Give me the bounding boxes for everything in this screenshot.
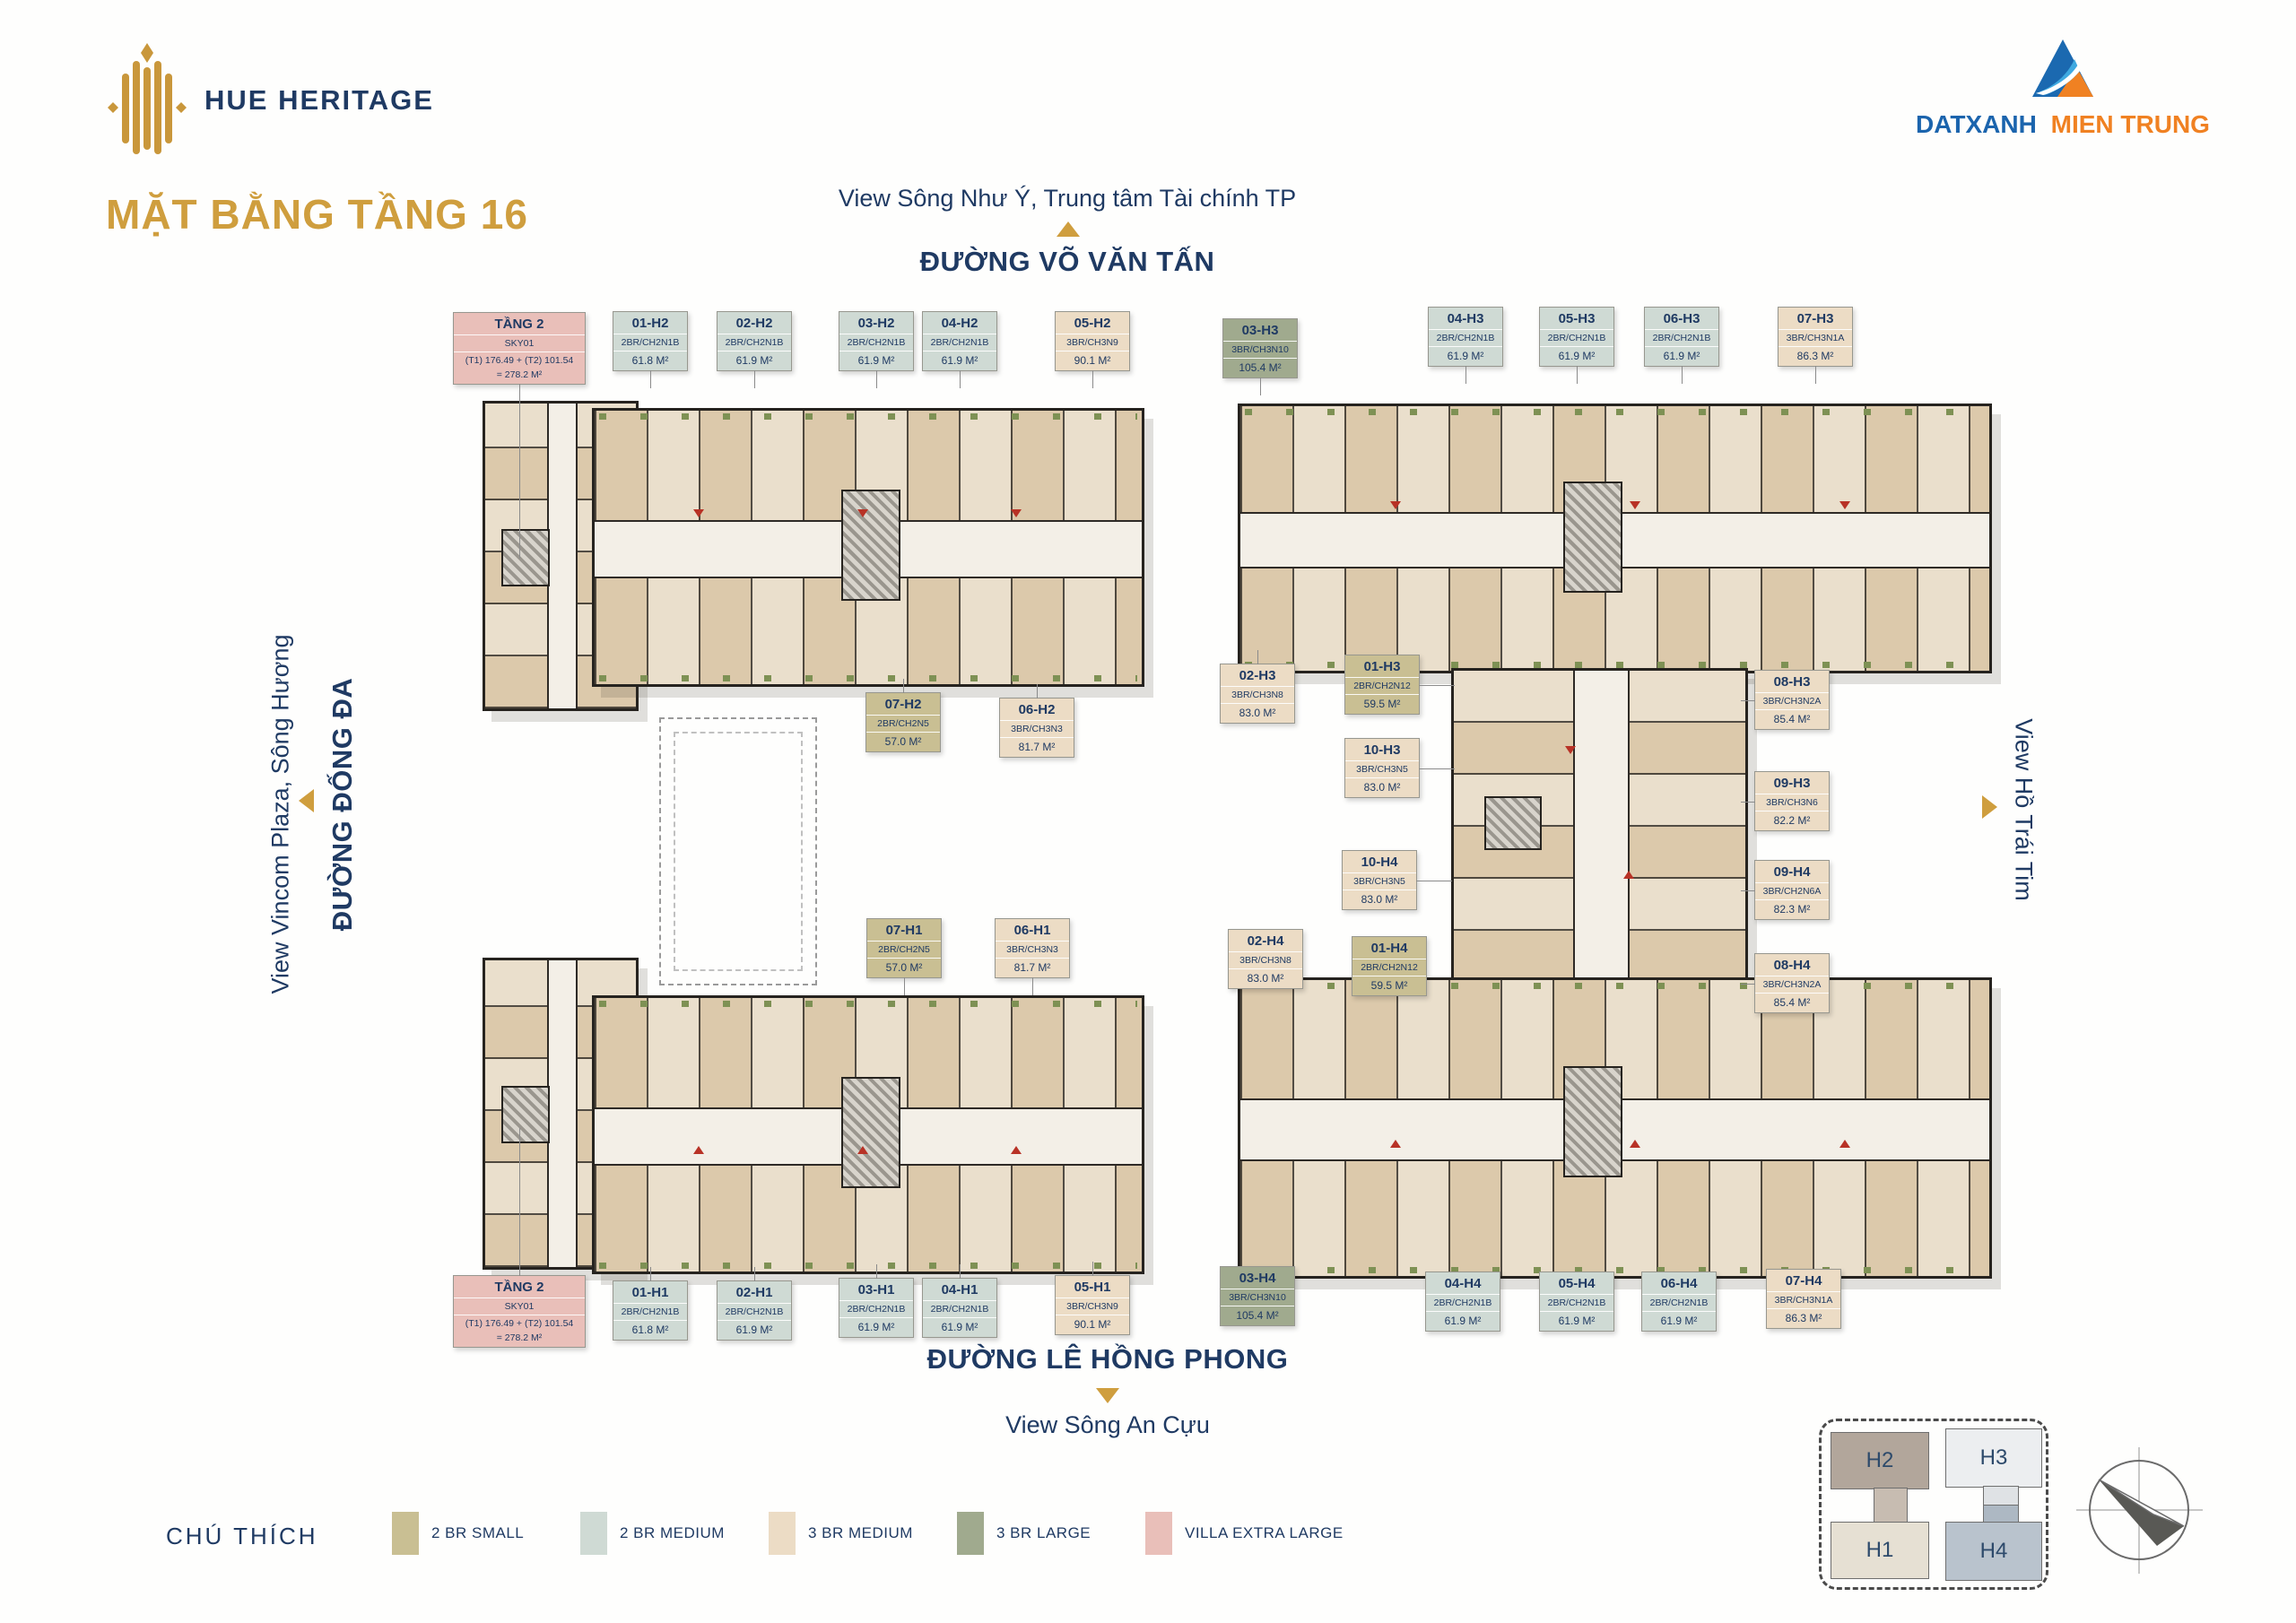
- unit-id: 04-H4: [1426, 1272, 1500, 1294]
- unit-label-06-H1: 06-H13BR/CH3N381.7 M²: [995, 918, 1070, 978]
- unit-id: 05-H3: [1540, 308, 1613, 329]
- floorplan-poster: HUE HERITAGE MẶT BẰNG TẦNG 16 DATXANH MI…: [0, 0, 2296, 1623]
- legend-swatch-2br-medium: [580, 1512, 607, 1555]
- unit-type: 3BR/CH3N9: [1056, 334, 1129, 351]
- unit-type: 2BR/CH2N1B: [717, 334, 791, 351]
- brand-lockup: HUE HERITAGE: [106, 43, 434, 158]
- brand-name: HUE HERITAGE: [204, 84, 434, 117]
- view-label-bottom: View Sông An Cựu: [874, 1411, 1341, 1439]
- street-label-top: ĐƯỜNG VÕ VĂN TẤN: [834, 246, 1300, 278]
- legend-label: 3 BR LARGE: [996, 1524, 1091, 1542]
- unit-type: 3BR/CH3N3: [996, 941, 1069, 958]
- unit-id: 08-H3: [1755, 671, 1829, 692]
- unit-type: 3BR/CH3N2A: [1755, 976, 1829, 993]
- stair-core: [1563, 482, 1622, 593]
- unit-area: 57.0 M²: [866, 732, 940, 751]
- tower-corridor: [547, 404, 578, 708]
- unit-label-05-H2: 05-H23BR/CH3N990.1 M²: [1055, 311, 1130, 371]
- datxanh-triangle-icon: [2022, 38, 2104, 102]
- compass: [2074, 1445, 2205, 1580]
- floorplan-h1-slab: [592, 995, 1144, 1274]
- unit-area: 61.9 M²: [717, 1320, 791, 1340]
- unit-label-10-H3: 10-H33BR/CH3N583.0 M²: [1344, 738, 1420, 798]
- unit-type: 2BR/CH2N1B: [1540, 329, 1613, 346]
- unit-type: 3BR/CH3N8: [1221, 686, 1294, 703]
- entrance-marker: [1390, 1140, 1401, 1148]
- unit-label-tang2-top: TẦNG 2SKY01(T1) 176.49 + (T2) 101.54= 27…: [453, 312, 586, 385]
- unit-label-02-H3: 02-H33BR/CH3N883.0 M²: [1220, 664, 1295, 724]
- unit-label-01-H3: 01-H32BR/CH2N1259.5 M²: [1344, 655, 1420, 715]
- unit-type: 2BR/CH2N1B: [839, 334, 913, 351]
- unit-id: 01-H1: [613, 1281, 687, 1303]
- unit-type: 2BR/CH2N1B: [613, 1303, 687, 1320]
- unit-type: SKY01: [454, 334, 585, 352]
- unit-type: 3BR/CH3N8: [1229, 951, 1302, 968]
- unit-label-06-H4: 06-H42BR/CH2N1B61.9 M²: [1641, 1271, 1717, 1332]
- unit-id: 02-H1: [717, 1281, 791, 1303]
- unit-label-04-H2: 04-H22BR/CH2N1B61.9 M²: [922, 311, 997, 371]
- keyplan-connector-right-top: [1983, 1486, 2019, 1506]
- void-outline: [659, 717, 817, 985]
- unit-id: 08-H4: [1755, 954, 1829, 976]
- unit-label-05-H1: 05-H13BR/CH3N990.1 M²: [1055, 1275, 1130, 1335]
- unit-id: 01-H4: [1352, 937, 1426, 959]
- unit-id: 05-H4: [1540, 1272, 1613, 1294]
- unit-area: 81.7 M²: [1000, 737, 1074, 757]
- unit-id: 03-H2: [839, 312, 913, 334]
- unit-id: 09-H4: [1755, 861, 1829, 882]
- stair-core: [1484, 796, 1542, 850]
- unit-area: 83.0 M²: [1343, 890, 1416, 909]
- unit-area: 61.9 M²: [1642, 1311, 1716, 1331]
- keyplan-block-h2: H2: [1831, 1432, 1929, 1489]
- entrance-marker: [1839, 1140, 1850, 1148]
- entrance-marker: [1390, 501, 1401, 509]
- unit-id: 07-H1: [867, 919, 941, 941]
- unit-area: 61.9 M²: [923, 1317, 996, 1337]
- entrance-marker: [693, 509, 704, 517]
- unit-id: 04-H2: [923, 312, 996, 334]
- unit-type: 2BR/CH2N5: [866, 715, 940, 732]
- legend-item: 2 BR SMALL: [392, 1512, 524, 1555]
- legend-swatch-2br-small: [392, 1512, 419, 1555]
- unit-label-03-H3: 03-H33BR/CH3N10105.4 M²: [1222, 318, 1298, 378]
- unit-type: 3BR/CH3N10: [1223, 341, 1297, 358]
- unit-type: 2BR/CH2N1B: [923, 1300, 996, 1317]
- legend-label: VILLA EXTRA LARGE: [1185, 1524, 1344, 1542]
- unit-label-08-H4: 08-H43BR/CH3N2A85.4 M²: [1754, 953, 1830, 1013]
- unit-id: 03-H4: [1221, 1267, 1294, 1289]
- unit-label-08-H3: 08-H33BR/CH3N2A85.4 M²: [1754, 670, 1830, 730]
- unit-label-03-H2: 03-H22BR/CH2N1B61.9 M²: [839, 311, 914, 371]
- unit-type: 2BR/CH2N1B: [1540, 1294, 1613, 1311]
- entrance-marker: [857, 1146, 868, 1154]
- unit-type: 2BR/CH2N1B: [1426, 1294, 1500, 1311]
- developer-name-orange: MIEN TRUNG: [2051, 110, 2210, 138]
- keyplan-block-h4: H4: [1945, 1522, 2042, 1581]
- unit-id: TẦNG 2: [454, 1276, 585, 1298]
- unit-label-01-H4: 01-H42BR/CH2N1259.5 M²: [1352, 936, 1427, 996]
- entrance-marker: [1565, 746, 1576, 754]
- legend-swatch-3br-large: [957, 1512, 984, 1555]
- mid-wing-corridor: [1573, 671, 1630, 983]
- arrow-right-icon: [1982, 795, 1997, 819]
- unit-area: 61.8 M²: [613, 351, 687, 370]
- unit-type: 3BR/CH3N1A: [1779, 329, 1852, 346]
- keyplan-block-h1: H1: [1831, 1522, 1929, 1579]
- unit-type: 3BR/CH3N5: [1345, 760, 1419, 777]
- unit-label-09-H3: 09-H33BR/CH3N682.2 M²: [1754, 771, 1830, 831]
- entrance-marker: [693, 1146, 704, 1154]
- unit-label-01-H1: 01-H12BR/CH2N1B61.8 M²: [613, 1280, 688, 1341]
- unit-area: (T1) 176.49 + (T2) 101.54: [454, 352, 585, 369]
- unit-type: 2BR/CH2N1B: [613, 334, 687, 351]
- legend-item: VILLA EXTRA LARGE: [1145, 1512, 1344, 1555]
- legend-item: 2 BR MEDIUM: [580, 1512, 725, 1555]
- unit-label-tang2-bottom: TẦNG 2SKY01(T1) 176.49 + (T2) 101.54= 27…: [453, 1275, 586, 1348]
- arrow-left-icon: [299, 789, 314, 812]
- unit-label-09-H4: 09-H43BR/CH2N6A82.3 M²: [1754, 860, 1830, 920]
- stair-core: [841, 1077, 900, 1188]
- view-label-left: View Vincom Plaza, Sông Hương: [267, 635, 295, 994]
- unit-label-05-H4: 05-H42BR/CH2N1B61.9 M²: [1539, 1271, 1614, 1332]
- floorplan-h3h4-mid-wing: [1451, 668, 1748, 985]
- unit-label-07-H3: 07-H33BR/CH3N1A86.3 M²: [1778, 307, 1853, 367]
- legend-item: 3 BR MEDIUM: [769, 1512, 913, 1555]
- unit-type: SKY01: [454, 1298, 585, 1315]
- unit-area: 82.3 M²: [1755, 899, 1829, 919]
- unit-type: 2BR/CH2N12: [1345, 677, 1419, 694]
- unit-area: 61.8 M²: [613, 1320, 687, 1340]
- unit-id: 01-H3: [1345, 655, 1419, 677]
- unit-id: 03-H1: [839, 1279, 913, 1300]
- developer-name-blue: DATXANH: [1916, 110, 2037, 138]
- unit-type: 3BR/CH3N5: [1343, 872, 1416, 890]
- unit-id: 02-H2: [717, 312, 791, 334]
- unit-type: 3BR/CH3N9: [1056, 1298, 1129, 1315]
- keyplan-label-h1: H1: [1866, 1538, 1894, 1563]
- unit-type: 3BR/CH3N3: [1000, 720, 1074, 737]
- compass-icon: [2074, 1445, 2205, 1575]
- unit-id: 07-H4: [1767, 1270, 1840, 1291]
- stair-core: [501, 529, 550, 586]
- unit-label-03-H1: 03-H12BR/CH2N1B61.9 M²: [839, 1278, 914, 1338]
- unit-type: 2BR/CH2N1B: [923, 334, 996, 351]
- unit-type: 3BR/CH3N6: [1755, 794, 1829, 811]
- entrance-marker: [1623, 871, 1634, 879]
- unit-area: 61.9 M²: [1429, 346, 1502, 366]
- unit-id: 10-H4: [1343, 851, 1416, 872]
- unit-area: (T1) 176.49 + (T2) 101.54: [454, 1315, 585, 1332]
- key-plan: H2 H3 H1 H4: [1819, 1419, 2048, 1590]
- unit-type: 3BR/CH3N1A: [1767, 1291, 1840, 1308]
- unit-area: 86.3 M²: [1779, 346, 1852, 366]
- floorplan-h4-slab: [1238, 977, 1992, 1279]
- unit-label-06-H3: 06-H32BR/CH2N1B61.9 M²: [1644, 307, 1719, 367]
- unit-id: 06-H3: [1645, 308, 1718, 329]
- unit-label-06-H2: 06-H23BR/CH3N381.7 M²: [999, 698, 1074, 758]
- entrance-marker: [1011, 509, 1022, 517]
- arrow-up-icon: [1057, 221, 1080, 237]
- unit-area2: = 278.2 M²: [454, 369, 585, 384]
- unit-area: 61.9 M²: [839, 1317, 913, 1337]
- entrance-marker: [1011, 1146, 1022, 1154]
- keyplan-connector-left: [1874, 1488, 1908, 1523]
- unit-area: 83.0 M²: [1345, 777, 1419, 797]
- unit-area: 82.2 M²: [1755, 811, 1829, 830]
- unit-type: 3BR/CH2N6A: [1755, 882, 1829, 899]
- unit-type: 2BR/CH2N1B: [1645, 329, 1718, 346]
- legend-swatch-3br-medium: [769, 1512, 796, 1555]
- unit-area: 105.4 M²: [1223, 358, 1297, 378]
- keyplan-label-h2: H2: [1866, 1448, 1894, 1473]
- floorplan-h2-slab: [592, 408, 1144, 687]
- unit-id: 09-H3: [1755, 772, 1829, 794]
- unit-id: 07-H3: [1779, 308, 1852, 329]
- unit-area2: = 278.2 M²: [454, 1332, 585, 1347]
- legend-swatch-villa: [1145, 1512, 1172, 1555]
- unit-id: 07-H2: [866, 693, 940, 715]
- unit-area: 86.3 M²: [1767, 1308, 1840, 1328]
- developer-name: DATXANH MIEN TRUNG: [1915, 110, 2211, 139]
- unit-id: 04-H1: [923, 1279, 996, 1300]
- unit-area: 85.4 M²: [1755, 709, 1829, 729]
- keyplan-label-h4: H4: [1980, 1539, 2008, 1564]
- street-label-left: ĐƯỜNG ĐỐNG ĐA: [326, 678, 359, 932]
- unit-type: 2BR/CH2N1B: [717, 1303, 791, 1320]
- entrance-marker: [1630, 1140, 1640, 1148]
- unit-area: 61.9 M²: [1540, 1311, 1613, 1331]
- legend-title: CHÚ THÍCH: [166, 1523, 318, 1550]
- legend-label: 3 BR MEDIUM: [808, 1524, 913, 1542]
- keyplan-label-h3: H3: [1980, 1445, 2008, 1471]
- legend-item: 3 BR LARGE: [957, 1512, 1091, 1555]
- unit-label-05-H3: 05-H32BR/CH2N1B61.9 M²: [1539, 307, 1614, 367]
- unit-label-02-H2: 02-H22BR/CH2N1B61.9 M²: [717, 311, 792, 371]
- unit-label-03-H4: 03-H43BR/CH3N10105.4 M²: [1220, 1266, 1295, 1326]
- hue-heritage-icon: [106, 43, 188, 158]
- floorplan-h3-slab: [1238, 404, 1992, 673]
- unit-id: 06-H2: [1000, 699, 1074, 720]
- unit-type: 2BR/CH2N1B: [839, 1300, 913, 1317]
- unit-label-01-H2: 01-H22BR/CH2N1B61.8 M²: [613, 311, 688, 371]
- unit-area: 61.9 M²: [839, 351, 913, 370]
- stair-core: [501, 1086, 550, 1143]
- unit-type: 3BR/CH3N2A: [1755, 692, 1829, 709]
- unit-label-02-H1: 02-H12BR/CH2N1B61.9 M²: [717, 1280, 792, 1341]
- unit-label-07-H2: 07-H22BR/CH2N557.0 M²: [865, 692, 941, 752]
- stair-core: [1563, 1066, 1622, 1177]
- view-label-top: View Sông Như Ý, Trung tâm Tài chính TP: [834, 185, 1300, 213]
- unit-area: 59.5 M²: [1352, 976, 1426, 995]
- unit-area: 83.0 M²: [1221, 703, 1294, 723]
- legend-label: 2 BR SMALL: [431, 1524, 524, 1542]
- unit-area: 90.1 M²: [1056, 351, 1129, 370]
- unit-area: 83.0 M²: [1229, 968, 1302, 988]
- unit-area: 57.0 M²: [867, 958, 941, 977]
- arrow-down-icon: [1096, 1388, 1119, 1403]
- unit-id: 10-H3: [1345, 739, 1419, 760]
- unit-area: 61.9 M²: [1540, 346, 1613, 366]
- unit-label-02-H4: 02-H43BR/CH3N883.0 M²: [1228, 929, 1303, 989]
- unit-area: 59.5 M²: [1345, 694, 1419, 714]
- page-title: MẶT BẰNG TẦNG 16: [106, 190, 528, 239]
- unit-type: 2BR/CH2N1B: [1642, 1294, 1716, 1311]
- unit-label-04-H3: 04-H32BR/CH2N1B61.9 M²: [1428, 307, 1503, 367]
- unit-label-07-H1: 07-H12BR/CH2N557.0 M²: [866, 918, 942, 978]
- unit-id: 01-H2: [613, 312, 687, 334]
- unit-area: 61.9 M²: [923, 351, 996, 370]
- unit-area: 81.7 M²: [996, 958, 1069, 977]
- tower-corridor: [547, 960, 578, 1267]
- unit-label-04-H4: 04-H42BR/CH2N1B61.9 M²: [1425, 1271, 1500, 1332]
- unit-area: 61.9 M²: [1645, 346, 1718, 366]
- unit-type: 2BR/CH2N12: [1352, 959, 1426, 976]
- unit-area: 61.9 M²: [1426, 1311, 1500, 1331]
- unit-id: 03-H3: [1223, 319, 1297, 341]
- unit-area: 85.4 M²: [1755, 993, 1829, 1012]
- unit-area: 61.9 M²: [717, 351, 791, 370]
- unit-type: 2BR/CH2N1B: [1429, 329, 1502, 346]
- view-label-right: View Hồ Trái Tim: [2010, 718, 2038, 901]
- entrance-marker: [857, 509, 868, 517]
- unit-id: 02-H3: [1221, 664, 1294, 686]
- unit-id: 04-H3: [1429, 308, 1502, 329]
- unit-label-04-H1: 04-H12BR/CH2N1B61.9 M²: [922, 1278, 997, 1338]
- legend-label: 2 BR MEDIUM: [620, 1524, 725, 1542]
- developer-logo: DATXANH MIEN TRUNG: [1915, 38, 2211, 139]
- unit-id: 06-H4: [1642, 1272, 1716, 1294]
- unit-label-10-H4: 10-H43BR/CH3N583.0 M²: [1342, 850, 1417, 910]
- unit-id: 05-H1: [1056, 1276, 1129, 1298]
- unit-id: 05-H2: [1056, 312, 1129, 334]
- unit-id: 02-H4: [1229, 930, 1302, 951]
- street-label-bottom: ĐƯỜNG LÊ HỒNG PHONG: [874, 1343, 1341, 1376]
- unit-type: 3BR/CH3N10: [1221, 1289, 1294, 1306]
- unit-area: 90.1 M²: [1056, 1315, 1129, 1334]
- unit-label-07-H4: 07-H43BR/CH3N1A86.3 M²: [1766, 1269, 1841, 1329]
- unit-id: 06-H1: [996, 919, 1069, 941]
- entrance-marker: [1839, 501, 1850, 509]
- unit-type: 2BR/CH2N5: [867, 941, 941, 958]
- keyplan-block-h3: H3: [1945, 1428, 2042, 1488]
- entrance-marker: [1630, 501, 1640, 509]
- unit-area: 105.4 M²: [1221, 1306, 1294, 1325]
- stair-core: [841, 490, 900, 601]
- unit-id: TẦNG 2: [454, 313, 585, 334]
